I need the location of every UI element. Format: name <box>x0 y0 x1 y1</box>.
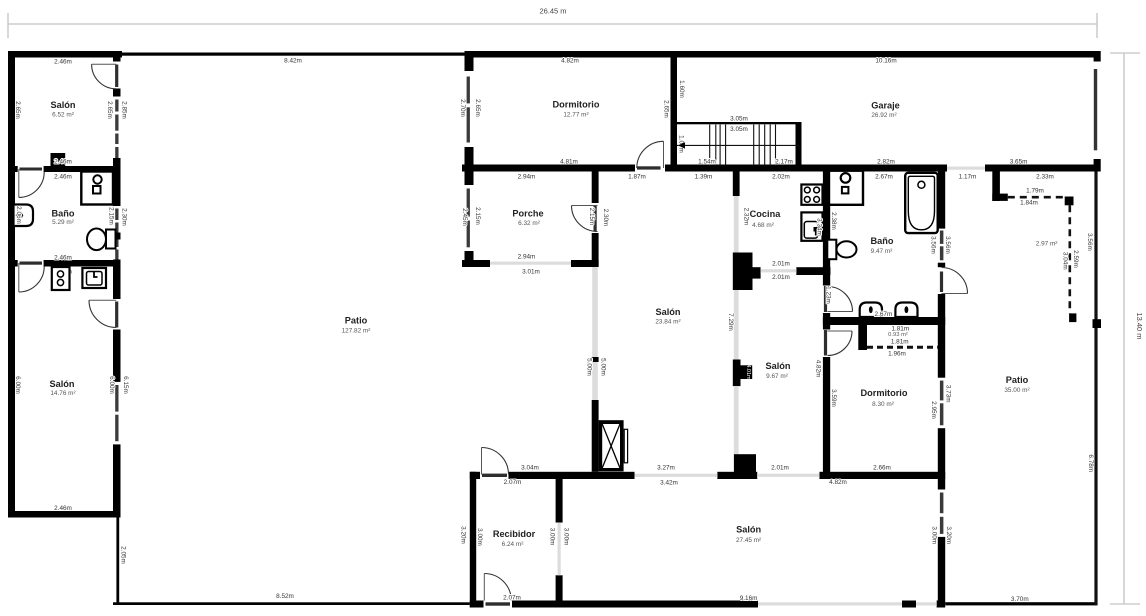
svg-text:8.30 m²: 8.30 m² <box>872 401 894 408</box>
svg-text:Salón: Salón <box>736 525 761 535</box>
svg-text:3.00m: 3.00m <box>562 528 569 546</box>
svg-text:4.68 m²: 4.68 m² <box>752 222 774 229</box>
svg-text:2.85m: 2.85m <box>121 101 128 119</box>
svg-text:1.87m: 1.87m <box>628 174 646 181</box>
svg-text:2.05m: 2.05m <box>120 546 127 564</box>
svg-text:2.46m: 2.46m <box>54 159 72 166</box>
svg-text:2.67m: 2.67m <box>875 311 893 318</box>
svg-text:1.79m: 1.79m <box>1026 188 1044 195</box>
svg-text:2.65m: 2.65m <box>662 100 669 118</box>
svg-text:3.56m: 3.56m <box>930 236 937 254</box>
svg-text:Patio: Patio <box>345 316 368 326</box>
svg-text:9.47 m²: 9.47 m² <box>871 248 893 255</box>
svg-text:Salón: Salón <box>50 100 75 110</box>
svg-text:3.20m: 3.20m <box>945 526 952 544</box>
svg-text:2.46m: 2.46m <box>54 59 72 66</box>
svg-text:2.46m: 2.46m <box>54 505 72 512</box>
svg-text:2.33m: 2.33m <box>1036 174 1054 181</box>
svg-text:Cocina: Cocina <box>750 209 782 219</box>
svg-text:2.94m: 2.94m <box>518 254 536 261</box>
svg-text:2.30m: 2.30m <box>121 208 128 226</box>
svg-text:1.17m: 1.17m <box>959 174 977 181</box>
svg-text:35.00 m²: 35.00 m² <box>1004 387 1029 394</box>
svg-text:1.39m: 1.39m <box>695 174 713 181</box>
svg-text:Salón: Salón <box>49 379 74 389</box>
svg-text:3.70m: 3.70m <box>1011 596 1029 603</box>
svg-text:3.00m: 3.00m <box>476 528 483 546</box>
svg-text:5.00m: 5.00m <box>586 358 593 376</box>
svg-text:2.02m: 2.02m <box>772 174 790 181</box>
svg-text:Baño: Baño <box>52 209 75 219</box>
svg-text:2.38m: 2.38m <box>830 212 837 230</box>
svg-text:3.05m: 3.05m <box>730 116 748 123</box>
svg-text:3.00m: 3.00m <box>931 526 938 544</box>
svg-text:2.07m: 2.07m <box>503 595 521 602</box>
svg-text:2.15m: 2.15m <box>108 207 115 225</box>
svg-text:6.00m: 6.00m <box>108 376 115 394</box>
svg-text:2.30m: 2.30m <box>602 209 609 227</box>
svg-text:3.00m: 3.00m <box>548 528 555 546</box>
svg-text:6.78m: 6.78m <box>1087 454 1094 472</box>
svg-text:4.81m: 4.81m <box>560 159 578 166</box>
svg-text:Porche: Porche <box>512 209 543 219</box>
svg-text:3.20m: 3.20m <box>460 526 467 544</box>
svg-text:2.65m: 2.65m <box>14 101 21 119</box>
svg-text:1.81m: 1.81m <box>891 339 909 346</box>
svg-text:2.65m: 2.65m <box>106 101 113 119</box>
svg-text:9.16m: 9.16m <box>740 595 758 602</box>
svg-text:2.46m: 2.46m <box>54 255 72 262</box>
svg-text:2.07m: 2.07m <box>504 479 522 486</box>
svg-text:9.67 m²: 9.67 m² <box>766 373 788 380</box>
svg-text:8.52m: 8.52m <box>276 593 294 600</box>
svg-text:23.84 m²: 23.84 m² <box>655 319 680 326</box>
svg-text:6.15m: 6.15m <box>122 376 129 394</box>
svg-text:7.29m: 7.29m <box>727 313 734 331</box>
svg-text:2.59m: 2.59m <box>1072 250 1079 268</box>
svg-text:3.05m: 3.05m <box>730 126 748 133</box>
svg-text:2.32m: 2.32m <box>742 208 749 226</box>
svg-text:6.52 m²: 6.52 m² <box>52 112 74 119</box>
svg-text:4.01m: 4.01m <box>745 364 751 380</box>
svg-text:3.34m: 3.34m <box>816 218 823 236</box>
svg-text:3.56m: 3.56m <box>944 236 951 254</box>
svg-text:Garaje: Garaje <box>871 101 900 111</box>
svg-text:6.32 m²: 6.32 m² <box>518 220 540 227</box>
svg-text:27.45 m²: 27.45 m² <box>736 537 761 544</box>
svg-text:1.60m: 1.60m <box>678 80 685 98</box>
svg-text:Dormitorio: Dormitorio <box>861 388 908 398</box>
svg-text:2.01m: 2.01m <box>771 465 789 472</box>
svg-text:8.42m: 8.42m <box>284 58 302 65</box>
svg-text:1.54m: 1.54m <box>698 159 716 166</box>
svg-text:3.73m: 3.73m <box>945 385 952 403</box>
svg-text:10.16m: 10.16m <box>875 58 896 65</box>
svg-text:6.00m: 6.00m <box>14 376 21 394</box>
svg-text:2.46m: 2.46m <box>54 174 72 181</box>
svg-text:26.45 m: 26.45 m <box>539 7 566 16</box>
svg-text:4.82m: 4.82m <box>561 58 579 65</box>
svg-text:127.82 m²: 127.82 m² <box>342 328 371 335</box>
svg-text:2.66m: 2.66m <box>873 465 891 472</box>
svg-text:4.82m: 4.82m <box>829 479 847 486</box>
svg-text:Salón: Salón <box>765 361 790 371</box>
svg-text:2.06m: 2.06m <box>15 206 22 224</box>
svg-text:13.40 m: 13.40 m <box>1135 312 1144 339</box>
svg-text:2.01m: 2.01m <box>772 261 790 268</box>
svg-text:1.23m: 1.23m <box>825 286 832 304</box>
svg-text:2.15m: 2.15m <box>474 207 481 225</box>
svg-text:Baño: Baño <box>871 236 894 246</box>
svg-text:2.45m: 2.45m <box>461 208 468 226</box>
svg-text:4.82m: 4.82m <box>815 360 822 378</box>
svg-text:2.67m: 2.67m <box>875 174 893 181</box>
svg-text:Dormitorio: Dormitorio <box>553 100 600 110</box>
svg-text:2.17m: 2.17m <box>775 159 793 166</box>
svg-text:2.01m: 2.01m <box>772 274 790 281</box>
svg-text:1.81m: 1.81m <box>891 326 909 333</box>
svg-text:3.59m: 3.59m <box>830 389 837 407</box>
svg-text:2.97 m²: 2.97 m² <box>1036 241 1058 248</box>
svg-text:3.42m: 3.42m <box>660 480 678 487</box>
svg-text:2.82m: 2.82m <box>877 159 895 166</box>
svg-text:2.95m: 2.95m <box>930 401 937 419</box>
svg-text:3.27m: 3.27m <box>657 465 675 472</box>
svg-text:5.29 m²: 5.29 m² <box>52 219 74 226</box>
svg-text:26.92 m²: 26.92 m² <box>871 112 896 119</box>
svg-text:3.04m: 3.04m <box>521 465 539 472</box>
svg-text:1.96m: 1.96m <box>888 351 906 358</box>
svg-text:0.93 m²: 0.93 m² <box>888 332 908 338</box>
svg-text:3.65m: 3.65m <box>1010 159 1028 166</box>
svg-text:Patio: Patio <box>1006 375 1029 385</box>
svg-text:12.77 m²: 12.77 m² <box>563 112 588 119</box>
svg-text:14.76 m²: 14.76 m² <box>50 390 75 397</box>
svg-text:5.00m: 5.00m <box>599 358 606 376</box>
svg-text:3.01m: 3.01m <box>522 269 540 276</box>
svg-text:2.65m: 2.65m <box>474 99 481 117</box>
svg-text:Salón: Salón <box>655 307 680 317</box>
svg-text:Recibidor: Recibidor <box>493 529 536 539</box>
svg-text:2.15m: 2.15m <box>588 208 595 226</box>
svg-text:2.94m: 2.94m <box>518 174 536 181</box>
svg-text:1.84m: 1.84m <box>1020 200 1038 207</box>
svg-text:6.24 m²: 6.24 m² <box>502 541 524 548</box>
svg-text:3.56m: 3.56m <box>1086 233 1093 251</box>
svg-text:3.04m: 3.04m <box>1061 252 1068 270</box>
svg-text:2.70m: 2.70m <box>459 99 466 117</box>
